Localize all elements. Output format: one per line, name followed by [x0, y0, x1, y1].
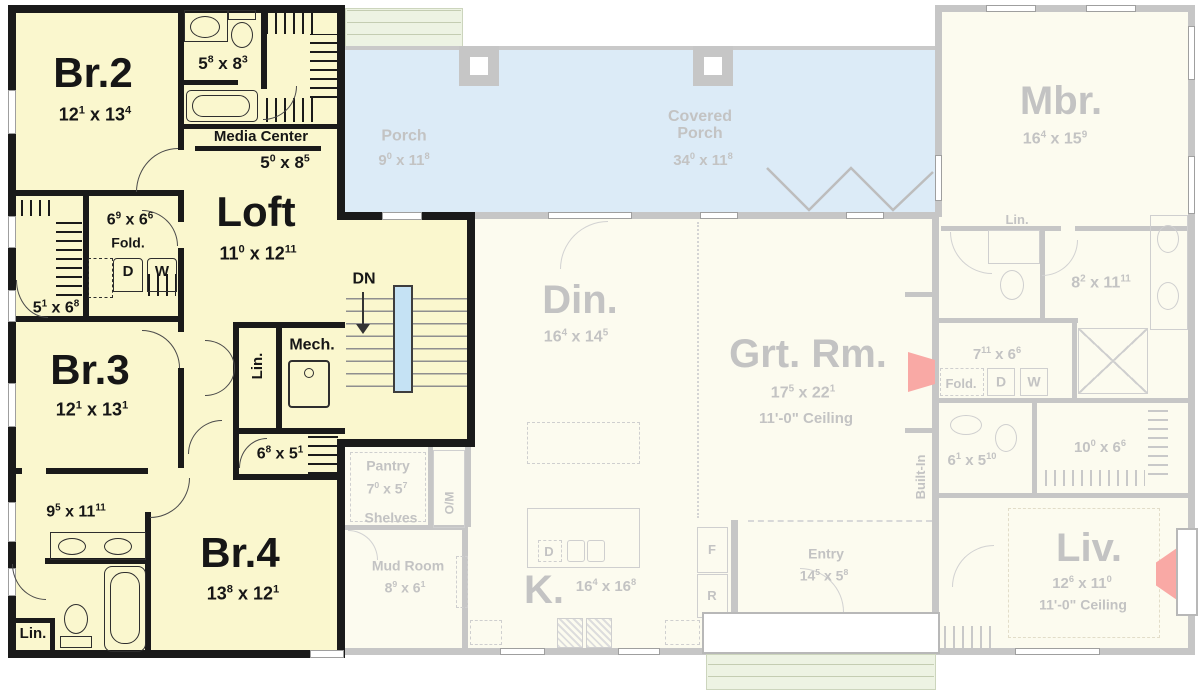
- water-heater-icon: [304, 368, 314, 378]
- mbr-linen-label: Lin.: [1005, 213, 1028, 227]
- room-br4-dim: 138 x 121: [207, 585, 280, 604]
- room-din-label: Din.: [542, 279, 618, 321]
- oven-microwave-cabinet: [433, 450, 465, 528]
- window: [8, 502, 16, 542]
- om-label: O/M: [444, 492, 457, 515]
- wall: [337, 439, 345, 658]
- window: [618, 648, 660, 655]
- range-icon: [586, 618, 612, 648]
- wall: [178, 368, 184, 468]
- wall: [233, 474, 345, 480]
- room-grt-label: Grt. Rm.: [729, 333, 887, 375]
- toilet-icon: [64, 604, 88, 634]
- wall: [467, 212, 475, 447]
- counter-dashed: [665, 620, 700, 645]
- mud-lockers: [456, 556, 468, 608]
- entry-dim: 145 x 58: [800, 569, 849, 584]
- fold-counter: [88, 258, 113, 298]
- wall: [178, 248, 184, 322]
- dishwasher-label: D: [544, 545, 553, 559]
- wall: [10, 618, 54, 623]
- window: [8, 383, 16, 427]
- entry-label: Entry: [808, 547, 844, 562]
- toilet-icon: [228, 10, 256, 20]
- sink-icon: [104, 538, 132, 555]
- fold-label: Fold.: [111, 236, 144, 251]
- wall: [465, 447, 471, 527]
- dryer-label: D: [996, 375, 1006, 390]
- window: [986, 5, 1036, 12]
- sink-icon: [950, 415, 982, 435]
- room-mbr-dim: 164 x 159: [1023, 132, 1087, 149]
- room-porch-label: Porch: [381, 129, 426, 146]
- kitchen-sink-icon: [587, 540, 605, 562]
- wic-dim: 100 x 66: [1074, 440, 1126, 456]
- wall: [1035, 398, 1188, 403]
- window: [310, 650, 344, 658]
- sink-icon: [1157, 225, 1179, 253]
- room-loft-label: Loft: [216, 190, 295, 234]
- room-br3-dim: 121 x 131: [56, 401, 129, 420]
- window: [700, 212, 738, 219]
- bath34-dim: 95 x 1111: [46, 505, 106, 522]
- builtin-label: Built-In: [914, 455, 928, 500]
- sink-icon: [190, 16, 220, 38]
- closet-rod-hatch: [266, 10, 314, 34]
- wall: [905, 292, 935, 297]
- pantry-shelves-label: Shelves: [365, 511, 418, 526]
- toilet-icon: [60, 636, 92, 648]
- counter-dashed: [470, 620, 502, 645]
- wall: [50, 618, 55, 652]
- closet-rod-hatch: [1045, 470, 1145, 486]
- window: [846, 212, 884, 219]
- coat-closet-hatch: [944, 626, 992, 648]
- window: [8, 290, 16, 322]
- window: [382, 212, 422, 220]
- room-liv-dim: 126 x 110: [1052, 576, 1112, 592]
- powder-dim: 61 x 510: [948, 453, 997, 469]
- room-br3-label: Br.3: [50, 348, 129, 392]
- washer-label: W: [1027, 375, 1040, 390]
- toilet-icon: [231, 22, 253, 48]
- mbath-dim: 82 x 1111: [1071, 276, 1131, 293]
- wall: [905, 428, 935, 433]
- fireplace-bump: [1176, 528, 1198, 616]
- linen-closet-box: [988, 230, 1040, 264]
- porch-post-icon: [693, 46, 733, 86]
- pantry-dim: 70 x 57: [367, 482, 408, 497]
- room-liv-label: Liv.: [1056, 527, 1122, 569]
- window: [1188, 156, 1195, 214]
- fridge-label: F: [708, 543, 716, 557]
- room-din-dim: 164 x 145: [544, 330, 608, 347]
- dn-arrow: [362, 292, 364, 324]
- wall: [178, 322, 184, 332]
- floor-plan: Porch 90 x 118 Covered Porch 340 x 118 M…: [0, 0, 1200, 694]
- kitchen-sink-icon: [567, 540, 585, 562]
- room-loft-dim: 110 x 1211: [219, 245, 296, 264]
- washer-label: W: [155, 264, 169, 280]
- porch-post-icon: [459, 46, 499, 86]
- entry-steps-lines: [708, 656, 934, 688]
- dryer-label: D: [123, 264, 134, 280]
- closet-rod-hatch: [310, 34, 338, 98]
- wall: [8, 650, 345, 658]
- closet-rod-hatch: [12, 200, 54, 216]
- bath2-dim: 58 x 83: [198, 55, 248, 73]
- wall: [276, 322, 282, 434]
- window: [8, 216, 16, 248]
- window: [8, 90, 16, 134]
- tub-icon: [192, 95, 250, 117]
- room-grt-dim: 175 x 221: [771, 386, 835, 403]
- wall: [932, 493, 1188, 498]
- wall: [1032, 398, 1037, 495]
- stairs-treads: [413, 288, 467, 398]
- pantry-label: Pantry: [366, 459, 410, 474]
- window: [500, 648, 545, 655]
- wall: [233, 434, 239, 480]
- sink-icon: [58, 538, 86, 555]
- mlaundry-fold-label: Fold.: [945, 377, 976, 391]
- window: [1086, 5, 1136, 12]
- dn-arrow-head: [356, 324, 370, 334]
- wall: [1072, 322, 1077, 400]
- wall: [932, 398, 1037, 403]
- wall: [337, 439, 475, 447]
- stairs-dn-label: DN: [352, 272, 375, 289]
- porch-rail: [345, 46, 935, 50]
- wall-dotted-divider: [697, 222, 699, 518]
- window: [1188, 26, 1195, 80]
- closet-rod-hatch: [308, 432, 338, 474]
- liv-ceiling-label: 11'-0" Ceiling: [1039, 598, 1127, 613]
- room-br2-dim: 121 x 134: [59, 106, 132, 125]
- window: [1015, 648, 1100, 655]
- room-kitchen-dim: 164 x 168: [576, 579, 636, 595]
- porch-steps-lines: [347, 10, 461, 46]
- room-br2-label: Br.2: [53, 51, 132, 95]
- window: [935, 155, 942, 201]
- stairs-treads: [346, 288, 393, 398]
- toilet-icon: [1000, 270, 1024, 300]
- room-kitchen-label: K.: [524, 569, 564, 611]
- mud-room-dim: 89 x 61: [385, 581, 426, 596]
- room-mbr-label: Mbr.: [1020, 80, 1102, 122]
- media-center-label: Media Center: [214, 129, 308, 145]
- wall: [233, 322, 345, 328]
- wall: [178, 196, 184, 222]
- room-covered-porch-label: Covered Porch: [645, 109, 755, 143]
- entry-stoop: [702, 612, 940, 654]
- wall-dashed-opening: [748, 520, 932, 522]
- closet-rod-hatch: [1148, 405, 1168, 475]
- sink-icon: [1157, 282, 1179, 310]
- dining-buffet: [527, 422, 640, 464]
- wall: [337, 5, 345, 219]
- wall: [8, 468, 22, 474]
- range-label: R: [707, 589, 716, 603]
- toilet-icon: [995, 424, 1017, 452]
- room-porch-dim: 90 x 118: [378, 153, 429, 169]
- mud-room-label: Mud Room: [372, 559, 444, 574]
- tub-icon: [110, 572, 140, 644]
- media-center-dim: 50 x 85: [260, 154, 310, 172]
- room-br4-label: Br.4: [200, 531, 279, 575]
- wall: [46, 468, 148, 474]
- grt-ceiling-label: 11'-0" Ceiling: [759, 411, 853, 427]
- wall: [233, 322, 239, 434]
- shower-icon: [1078, 328, 1148, 394]
- closet4-dim: 68 x 51: [257, 447, 304, 464]
- wall: [195, 146, 321, 151]
- mlaundry-dim: 711 x 66: [973, 347, 1021, 363]
- range-icon: [557, 618, 583, 648]
- porch-zigzag: [765, 166, 935, 212]
- wall: [932, 318, 1078, 323]
- room-covered-porch-dim: 340 x 118: [673, 153, 733, 169]
- mech-label: Mech.: [289, 338, 334, 355]
- laundry-dim: 69 x 66: [107, 213, 154, 230]
- linen2-label: Lin.: [20, 626, 47, 642]
- linen-label: Lin.: [250, 353, 266, 380]
- closet-rod-hatch: [56, 216, 82, 296]
- closet23-dim: 51 x 68: [33, 301, 80, 318]
- wall: [184, 80, 238, 85]
- wall: [935, 5, 1195, 12]
- window: [548, 212, 632, 219]
- wall: [731, 520, 738, 617]
- stair-railing: [393, 285, 413, 393]
